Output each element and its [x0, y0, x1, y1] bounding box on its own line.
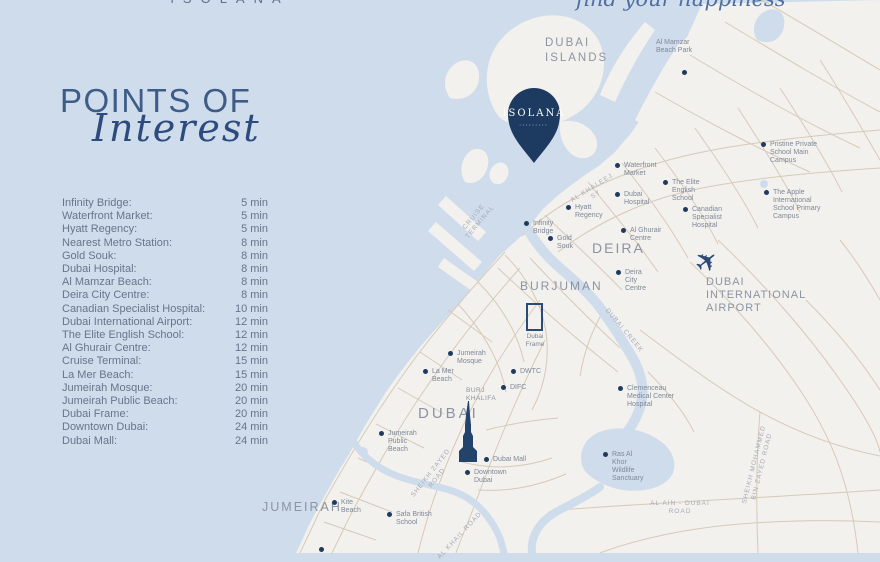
poi-row: Dubai Hospital:8 min — [62, 263, 268, 276]
poi-dot-icon — [761, 142, 766, 147]
poi-name: The Elite English School: — [62, 329, 184, 342]
poi-row: Hyatt Regency:5 min — [62, 223, 268, 236]
poi-label: Deira City Centre — [625, 269, 655, 293]
island-small-1 — [461, 149, 488, 183]
map-marker-dwtc: DWTC — [511, 369, 541, 376]
poi-name: Dubai International Airport: — [62, 316, 192, 329]
poi-name: Cruise Terminal: — [62, 355, 141, 368]
poi-label: The Apple International School Primary C… — [773, 189, 827, 221]
map-marker-al-ghurair: Al Ghurair Centre — [621, 228, 664, 243]
map-marker-gold-souk: Gold Souk — [548, 236, 581, 251]
poi-row: La Mer Beach:15 min — [62, 369, 268, 382]
airport-label: DUBAI INTERNATIONAL AIRPORT — [706, 276, 806, 315]
poi-time: 8 min — [241, 276, 268, 289]
poi-row: Canadian Specialist Hospital:10 min — [62, 303, 268, 316]
poi-time: 5 min — [241, 223, 268, 236]
poi-dot-icon — [615, 192, 620, 197]
poi-label: Infinity Bridge — [533, 220, 563, 236]
poi-time: 20 min — [235, 382, 268, 395]
pond-safa-2 — [358, 447, 368, 457]
pond-safa-1 — [346, 422, 358, 434]
district-jumeirah: JUMEIRAH — [262, 500, 342, 514]
poi-name: Waterfront Market: — [62, 210, 153, 223]
poi-row: Gold Souk:8 min — [62, 250, 268, 263]
poi-time: 5 min — [241, 210, 268, 223]
poi-row: Waterfront Market:5 min — [62, 210, 268, 223]
map-marker-safa: Safa British School — [387, 512, 432, 527]
poi-dot-icon — [501, 385, 506, 390]
dubai-frame-label: Dubai Frame — [517, 333, 553, 348]
poi-row: Dubai Mall:24 min — [62, 435, 268, 448]
poi-time: 24 min — [235, 435, 268, 448]
poi-name: Infinity Bridge: — [62, 197, 132, 210]
poi-name: Jumeirah Public Beach: — [62, 395, 178, 408]
poi-label: Safa British School — [396, 511, 432, 527]
district-burjuman: BURJUMAN — [520, 279, 603, 293]
poi-label: Al Ghurair Centre — [630, 227, 664, 243]
poi-time: 15 min — [235, 355, 268, 368]
poi-name: Nearest Metro Station: — [62, 237, 172, 250]
poi-row: Jumeirah Mosque:20 min — [62, 382, 268, 395]
poi-time: 8 min — [241, 289, 268, 302]
poi-name: Downtown Dubai: — [62, 421, 148, 434]
poi-name: Canadian Specialist Hospital: — [62, 303, 205, 316]
poi-label: Gold Souk — [557, 235, 581, 251]
poi-row: Al Mamzar Beach:8 min — [62, 276, 268, 289]
poi-label: Jumeirah Public Beach — [388, 430, 428, 454]
poi-row: Jumeirah Public Beach:20 min — [62, 395, 268, 408]
poi-name: Hyatt Regency: — [62, 223, 137, 236]
map-marker-infinity: Infinity Bridge — [524, 221, 563, 236]
poi-row: Dubai Frame:20 min — [62, 408, 268, 421]
poi-label: Kite Beach — [341, 499, 365, 515]
poi-time: 20 min — [235, 395, 268, 408]
poi-dot-icon — [387, 512, 392, 517]
island-strip-1 — [600, 22, 655, 102]
poi-label: Downtown Dubai — [474, 469, 514, 485]
poi-name: Al Ghurair Centre: — [62, 342, 151, 355]
isolana-pin-label: ISOLANA — [503, 108, 566, 119]
poi-dot-icon — [511, 369, 516, 374]
poi-list: Infinity Bridge:5 min Waterfront Market:… — [62, 197, 268, 448]
poi-time: 20 min — [235, 408, 268, 421]
map-marker-downtown: Downtown Dubai — [465, 470, 514, 485]
poi-label: Clemenceau Medical Center Hospital — [627, 385, 677, 409]
poi-label: Ras Al Khor Wildlife Sanctuary — [612, 451, 648, 483]
map-marker-deira-cc: Deira City Centre — [616, 270, 655, 293]
poi-dot-icon — [548, 236, 553, 241]
poi-dot-icon — [319, 547, 324, 552]
poi-row: Downtown Dubai:24 min — [62, 421, 268, 434]
poi-dot-icon — [465, 470, 470, 475]
isolana-pin-sublabel: ••••••••• — [519, 123, 548, 127]
poi-row: Deira City Centre:8 min — [62, 289, 268, 302]
poi-time: 5 min — [241, 197, 268, 210]
map-marker-dubai-hospital: Dubai Hospital — [615, 192, 658, 207]
poi-row: Dubai International Airport:12 min — [62, 316, 268, 329]
district-dubai-islands: DUBAI ISLANDS — [545, 36, 608, 66]
poi-name: Jumeirah Mosque: — [62, 382, 153, 395]
poi-label: The Elite English School — [672, 179, 710, 203]
map-marker-apple-school: The Apple International School Primary C… — [764, 190, 827, 221]
poi-label: Hyatt Regency — [575, 204, 611, 220]
poi-dot-icon — [332, 500, 337, 505]
map-marker-pristine: Pristine Private School Main Campus — [761, 142, 822, 165]
poi-dot-icon — [682, 70, 687, 75]
poi-row: The Elite English School:12 min — [62, 329, 268, 342]
map-marker-clemenceau: Clemenceau Medical Center Hospital — [618, 386, 677, 409]
isolana-pin-shape: ISOLANA ••••••••• — [502, 85, 566, 165]
poi-dot-icon — [621, 228, 626, 233]
poi-label: Dubai Hospital — [624, 191, 658, 207]
map-marker-kite-beach: Kite Beach — [332, 500, 365, 515]
map-marker-hyatt: Hyatt Regency — [566, 205, 611, 220]
poi-label: Jumeirah Mosque — [457, 350, 491, 366]
poi-time: 8 min — [241, 263, 268, 276]
poi-label: DWTC — [520, 368, 541, 376]
poi-dot-icon — [618, 386, 623, 391]
poi-name: Dubai Frame: — [62, 408, 129, 421]
poi-time: 12 min — [235, 342, 268, 355]
poi-label: Canadian Specialist Hospital — [692, 206, 736, 230]
pond-small-1 — [760, 180, 768, 188]
poi-label: Pristine Private School Main Campus — [770, 141, 822, 165]
map-marker-waterfront: Waterfront Market — [615, 163, 670, 178]
poi-dot-icon — [524, 221, 529, 226]
poi-dot-icon — [603, 452, 608, 457]
poi-dot-icon — [616, 270, 621, 275]
poi-dot-icon — [379, 431, 384, 436]
island-small-west — [445, 60, 479, 98]
island-small-2 — [490, 163, 509, 185]
poi-time: 12 min — [235, 329, 268, 342]
burj-khalifa-icon — [456, 401, 480, 463]
poi-name: Gold Souk: — [62, 250, 116, 263]
map-marker-canadian: Canadian Specialist Hospital — [683, 207, 736, 230]
poi-time: 8 min — [241, 250, 268, 263]
poi-row: Infinity Bridge:5 min — [62, 197, 268, 210]
poi-dot-icon — [448, 351, 453, 356]
poi-name: La Mer Beach: — [62, 369, 134, 382]
page-title-line2: Interest — [92, 106, 261, 150]
poi-time: 24 min — [235, 421, 268, 434]
poi-name: Dubai Mall: — [62, 435, 117, 448]
poi-dot-icon — [484, 457, 489, 462]
poi-dot-icon — [764, 190, 769, 195]
poi-row: Nearest Metro Station:8 min — [62, 237, 268, 250]
poi-name: Dubai Hospital: — [62, 263, 137, 276]
poi-dot-icon — [566, 205, 571, 210]
map-marker-jumeirah-beach: Jumeirah Public Beach — [379, 431, 428, 454]
poi-dot-icon — [683, 207, 688, 212]
road-label-al-ain: AL AIN - DUBAI ROAD — [640, 500, 720, 515]
poi-label: Al Mamzar Beach Park — [656, 39, 702, 55]
poi-label: DIFC — [510, 384, 526, 392]
poi-time: 8 min — [241, 237, 268, 250]
poi-row: Cruise Terminal:15 min — [62, 355, 268, 368]
poi-dot-icon — [423, 369, 428, 374]
poi-name: Deira City Centre: — [62, 289, 149, 302]
map-marker-elite: The Elite English School — [663, 180, 710, 203]
poi-label: Waterfront Market — [624, 162, 670, 178]
poi-label: Dubai Mall — [493, 456, 526, 464]
poi-time: 10 min — [235, 303, 268, 316]
poi-time: 15 min — [235, 369, 268, 382]
brand-logo: ISOLANA — [160, 0, 300, 6]
poi-row: Al Ghurair Centre:12 min — [62, 342, 268, 355]
brand-tagline: find your happiness — [576, 0, 796, 11]
map-marker-difc: DIFC — [501, 385, 526, 392]
map-marker-jumeirah-mosque: Jumeirah Mosque — [448, 351, 491, 366]
isolana-pin: ISOLANA ••••••••• — [502, 85, 566, 165]
map-marker-dubai-mall: Dubai Mall — [484, 457, 526, 464]
poi-dot-icon — [663, 180, 668, 185]
map-marker-ras-al-khor: Ras Al Khor Wildlife Sanctuary — [603, 452, 648, 483]
poi-dot-icon — [615, 163, 620, 168]
poi-label: La Mer Beach — [432, 368, 458, 384]
dubai-frame-icon — [526, 303, 543, 331]
poi-time: 12 min — [235, 316, 268, 329]
map-marker-la-mer: La Mer Beach — [423, 369, 458, 384]
poi-name: Al Mamzar Beach: — [62, 276, 152, 289]
